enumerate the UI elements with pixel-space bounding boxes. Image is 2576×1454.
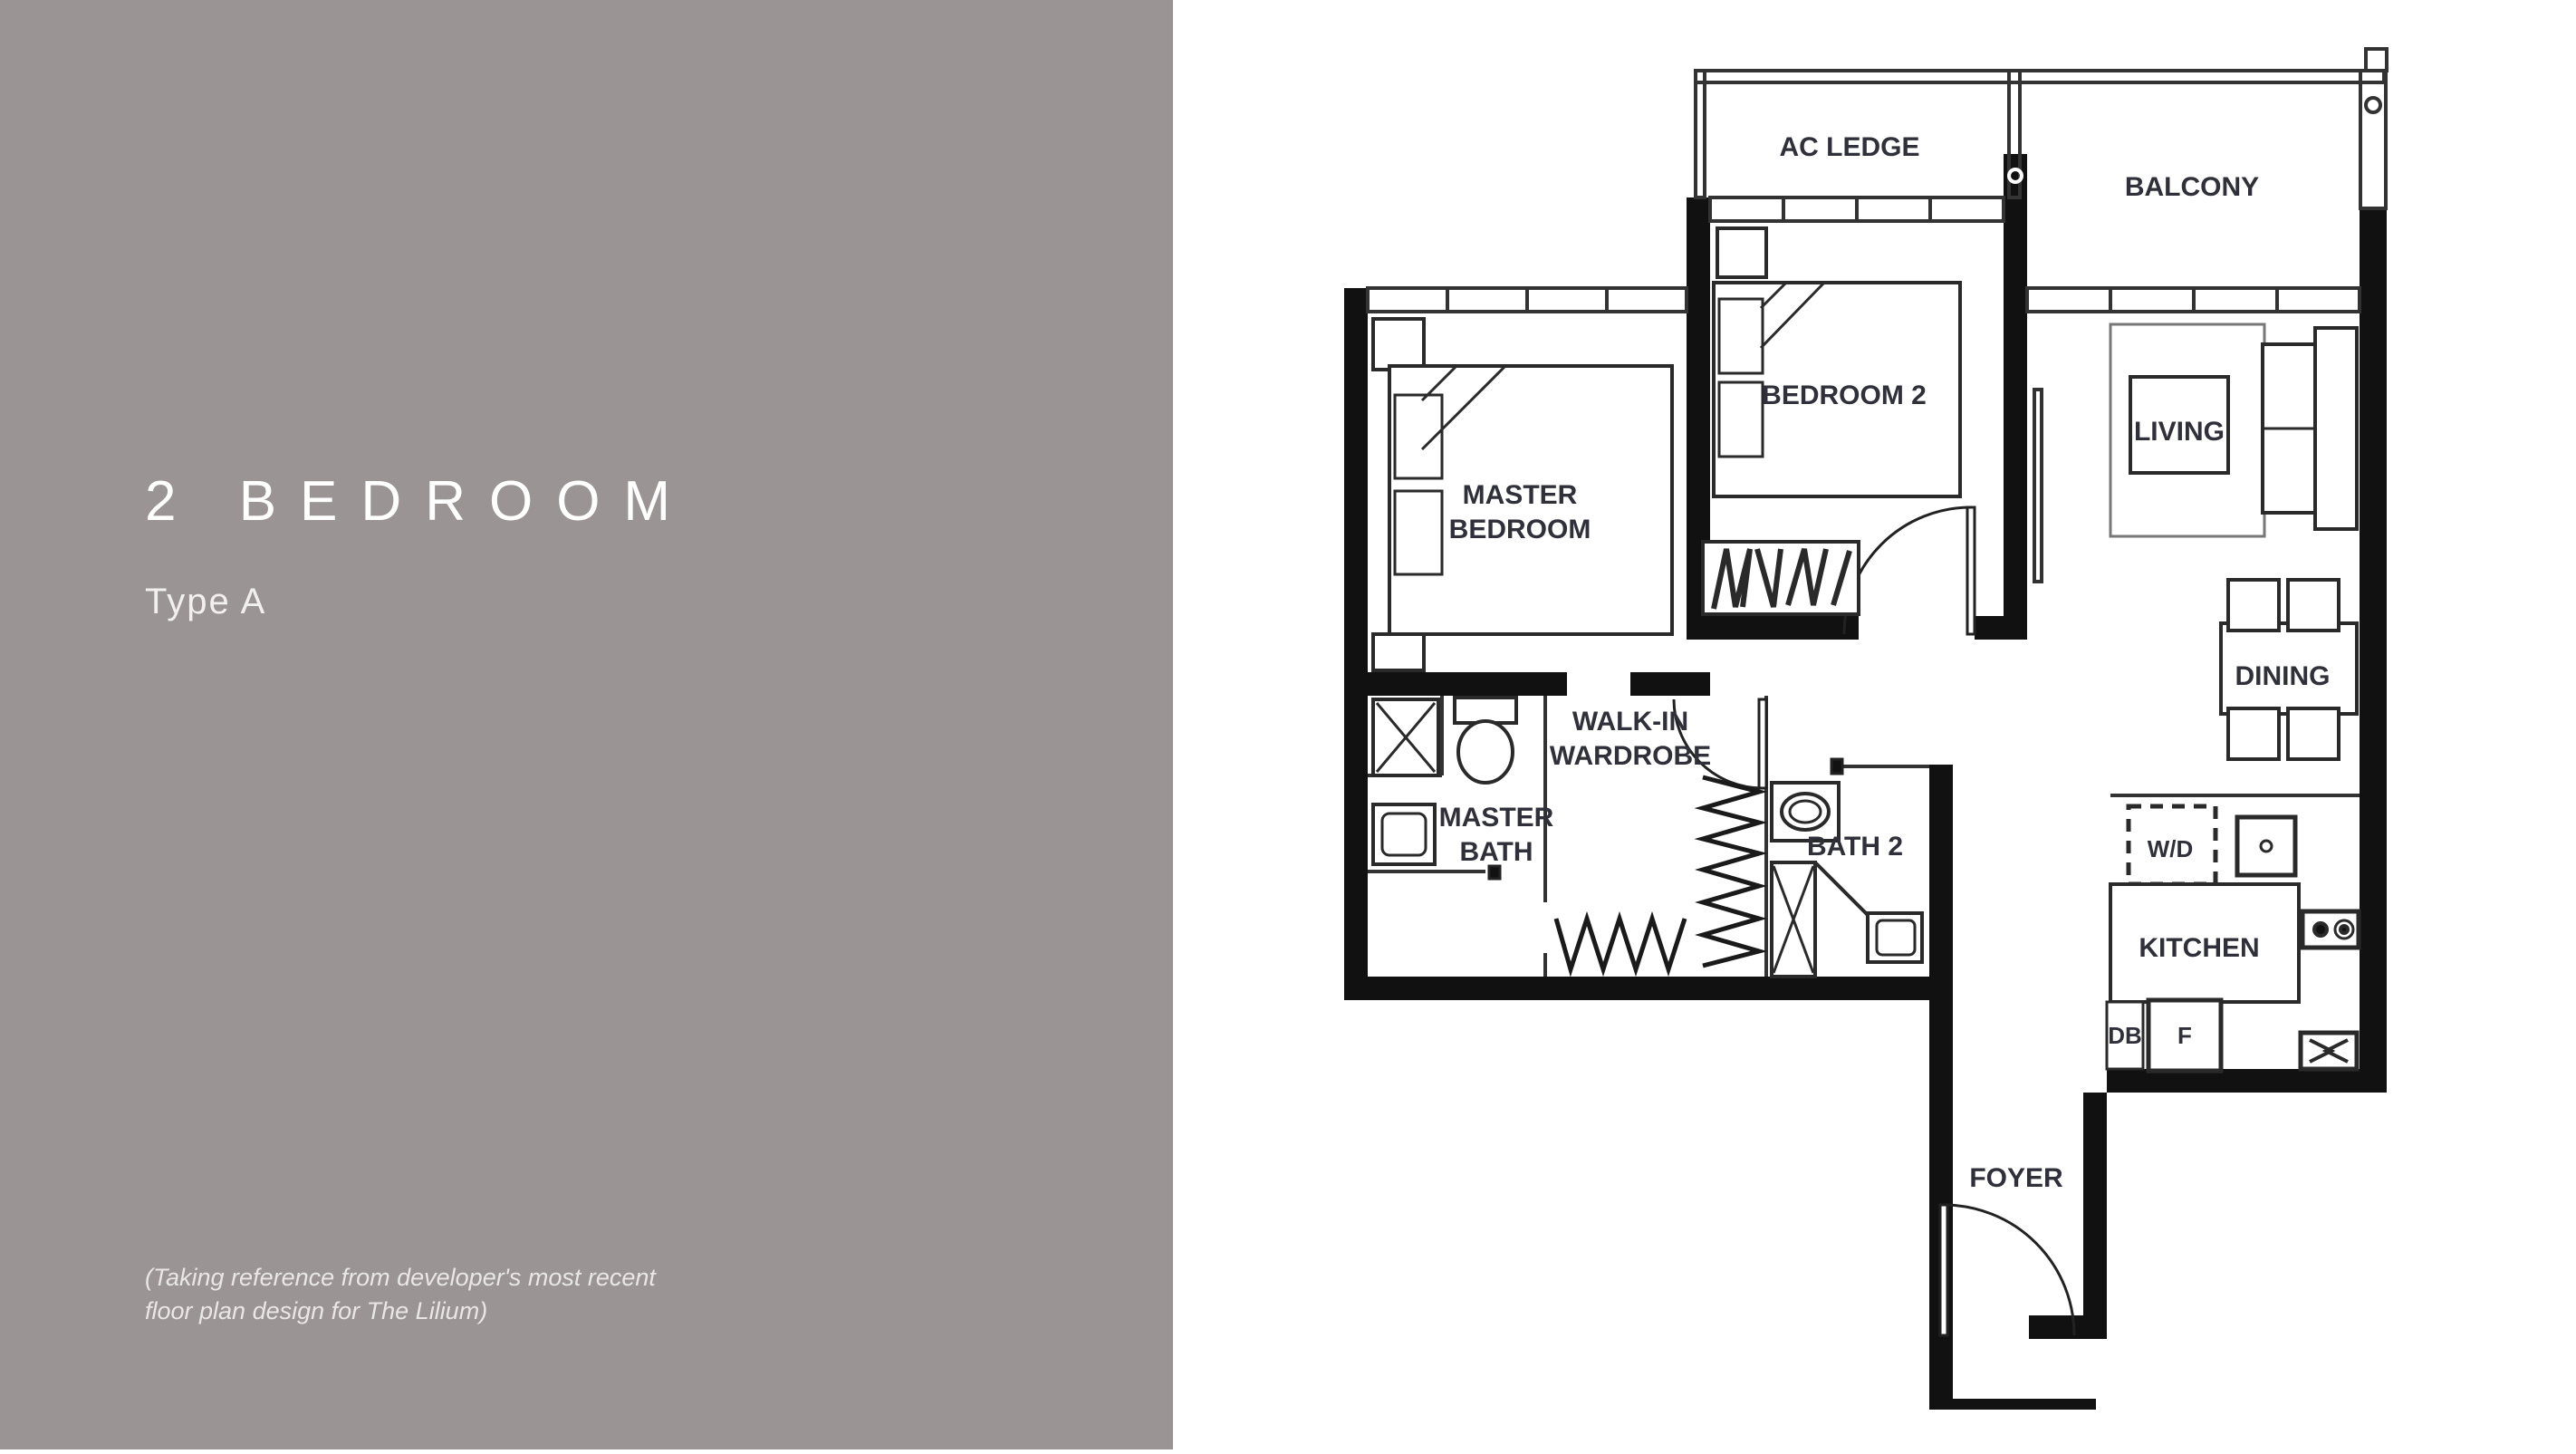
pillow-icon	[1719, 299, 1763, 373]
toilet-tank-icon	[1455, 698, 1516, 723]
toilet-inner	[1877, 920, 1915, 955]
label-db: DB	[2108, 1022, 2142, 1049]
burner-center	[2341, 926, 2348, 933]
floor-plan-area: AC LEDGE BALCONY BEDROOM 2 MASTER BEDROO…	[0, 0, 2576, 1449]
room-label-foyer: FOYER	[1969, 1163, 2063, 1193]
room-label-master-bedroom-1: MASTER	[1463, 480, 1578, 510]
bedroom2-door-arc	[1844, 507, 1971, 634]
nightstand-icon	[1717, 228, 1766, 277]
floor-plan-drawing: AC LEDGE BALCONY BEDROOM 2 MASTER BEDROO…	[0, 0, 2576, 1449]
bath2-diagonal-wall	[1815, 862, 1868, 915]
nightstand-icon	[1373, 319, 1424, 370]
dining-chair	[2288, 708, 2339, 759]
dining-chair	[2228, 708, 2279, 759]
wall-bedroom2-bottom	[1687, 616, 1859, 640]
room-label-master-bath-2: BATH	[1459, 837, 1533, 867]
wall-master-left	[1344, 288, 1368, 1000]
room-label-walkin-2: WARDROBE	[1550, 741, 1711, 771]
burner-icon	[2314, 923, 2327, 936]
room-label-kitchen: KITCHEN	[2139, 933, 2259, 963]
wall-outer-right	[2360, 208, 2387, 1093]
room-label-bath2: BATH 2	[1807, 832, 1903, 862]
rail-marker-circle	[2366, 98, 2380, 112]
wardrobe-door-leaf	[1759, 699, 1766, 788]
sink-basin-icon	[1382, 814, 1426, 855]
room-label-walkin-1: WALK-IN	[1572, 707, 1688, 737]
entry-door-leaf	[1940, 1205, 1947, 1335]
wall-foyer-right	[2083, 1093, 2107, 1339]
toilet-bowl-icon	[1458, 721, 1513, 783]
sliding-panel	[2034, 390, 2042, 582]
hanging-clothes-hatch	[1556, 919, 1685, 969]
label-washer-dryer: W/D	[2148, 835, 2194, 862]
label-fridge: F	[2177, 1022, 2192, 1049]
balcony-right-rail	[2360, 71, 2386, 208]
dining-chair	[2288, 580, 2339, 631]
wall-bedroom2-right	[2004, 197, 2027, 640]
hanging-clothes-hatch	[1703, 777, 1759, 966]
sink-drain-dot	[2261, 841, 2272, 852]
living-dining-furniture	[2110, 324, 2357, 759]
room-label-master-bedroom-2: BEDROOM	[1449, 515, 1591, 544]
sink-basin-inner	[1790, 801, 1821, 823]
room-label-balcony: BALCONY	[2125, 172, 2259, 202]
wall-master-bottom-left	[1344, 672, 1567, 696]
wall-foyer-bottom	[1937, 1399, 2096, 1410]
room-label-bedroom2: BEDROOM 2	[1762, 380, 1927, 410]
room-label-master-bath-1: MASTER	[1439, 803, 1554, 833]
bedroom-furniture	[1373, 228, 1960, 670]
balcony-divider-post	[2004, 154, 2027, 197]
masterbath-door-tick	[1489, 866, 1500, 879]
dining-chair	[2228, 580, 2279, 631]
room-label-dining: DINING	[2235, 661, 2331, 691]
top-railing	[1696, 71, 2384, 82]
bath2-door-tick	[1831, 759, 1842, 774]
bedroom2-door-leaf	[1967, 507, 1975, 634]
wall-bath-block-bottom	[1344, 977, 1953, 1000]
ac-ledge-left-rail	[1696, 71, 1705, 197]
wall-foyer-step	[2029, 1315, 2107, 1339]
pillow-icon	[1395, 491, 1442, 574]
wall-master-bottom-right	[1630, 672, 1710, 696]
wall-bedroom2-bottom-stub	[1975, 616, 2027, 640]
pillow-icon	[1719, 382, 1763, 457]
room-label-living: LIVING	[2134, 417, 2225, 447]
nightstand-icon	[1373, 634, 1424, 670]
sofa-back	[2315, 328, 2357, 529]
walkin-wardrobe-hatch	[1556, 777, 1759, 969]
room-label-ac-ledge: AC LEDGE	[1779, 132, 1919, 162]
balcony-corner-post	[2366, 49, 2387, 71]
